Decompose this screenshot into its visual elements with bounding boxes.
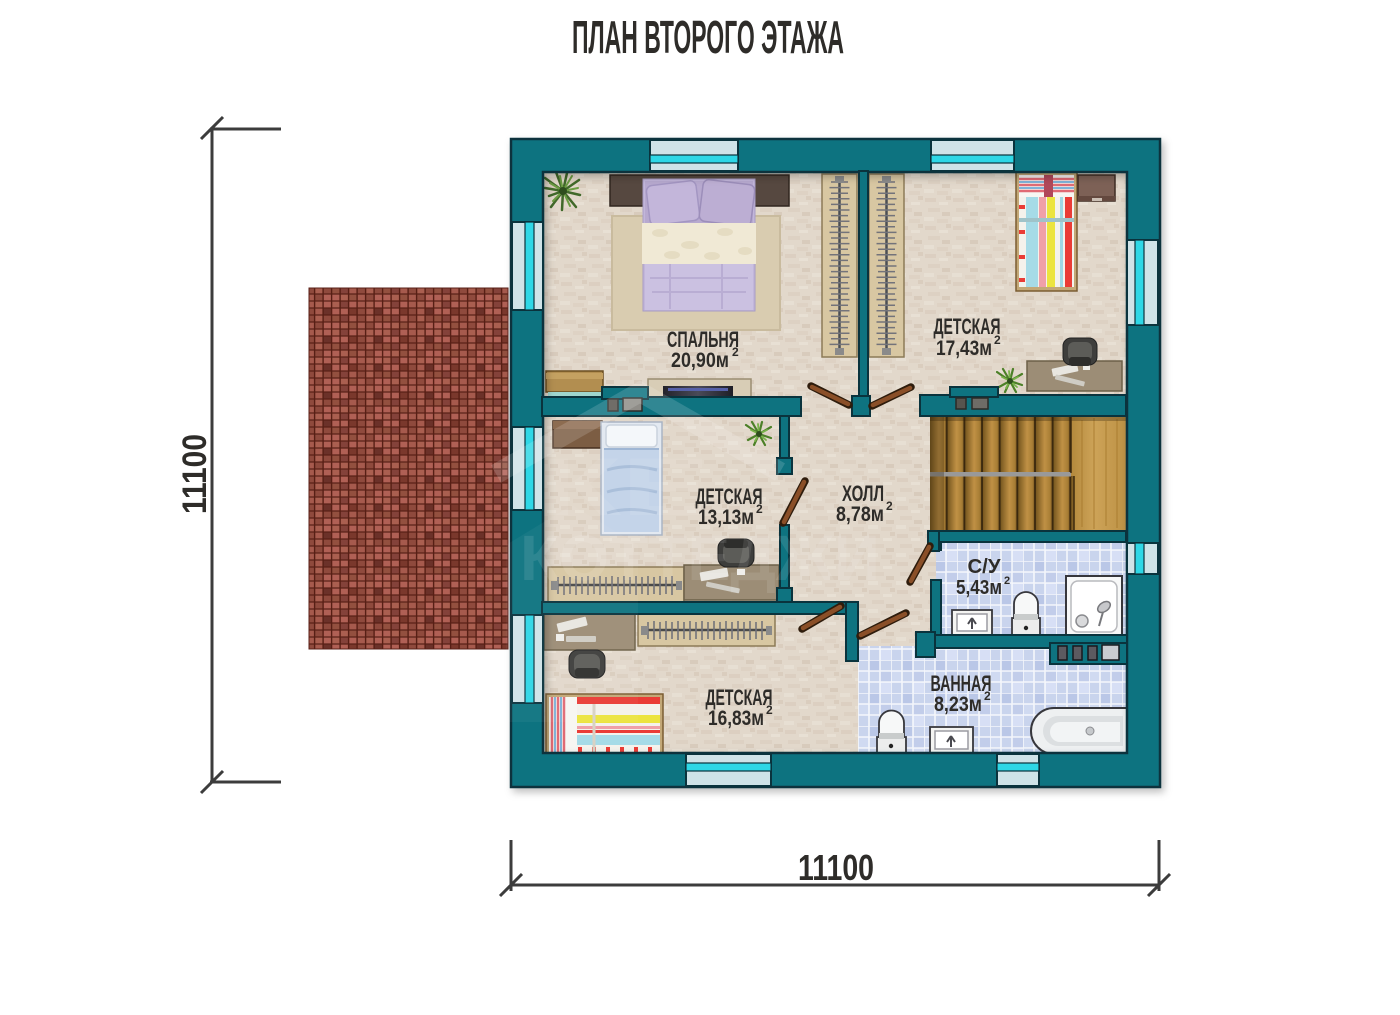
svg-text:8,23м: 8,23м [934,693,982,716]
svg-text:17,43м: 17,43м [936,337,992,360]
svg-text:2: 2 [732,345,739,359]
svg-text:2: 2 [756,502,763,516]
svg-text:13,13м: 13,13м [698,506,754,529]
svg-text:2: 2 [994,333,1001,347]
svg-text:2: 2 [984,689,991,703]
svg-text:2: 2 [886,499,893,513]
svg-text:ДЕТСКАЯ: ДЕТСКАЯ [934,314,1001,339]
svg-text:11100: 11100 [798,847,874,888]
svg-text:КЕ: КЕ [540,442,710,533]
svg-text:С/У: С/У [968,556,1002,578]
svg-text:2: 2 [766,703,773,717]
svg-text:20,90м: 20,90м [671,349,729,372]
svg-text:16,83м: 16,83м [708,707,764,730]
svg-text:11100: 11100 [176,434,214,514]
svg-text:5,43м: 5,43м [956,577,1002,599]
svg-text:ПЛАН ВТОРОГО ЭТАЖА: ПЛАН ВТОРОГО ЭТАЖА [572,11,844,63]
svg-text:2: 2 [1004,575,1010,587]
svg-text:8,78м: 8,78м [836,503,884,526]
